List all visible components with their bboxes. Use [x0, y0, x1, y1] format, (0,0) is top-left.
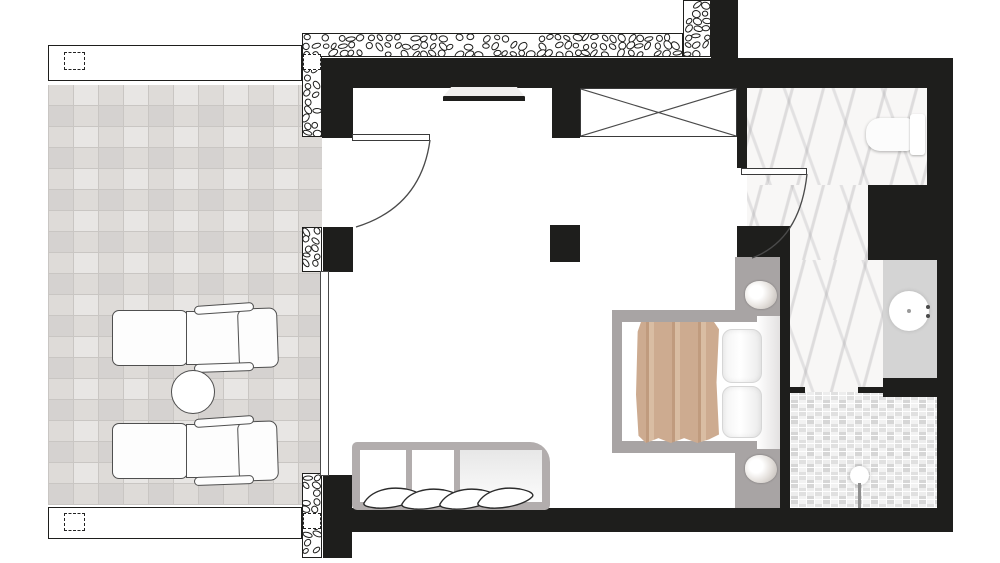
lounger-seat — [112, 310, 188, 366]
bathroom-door-block — [737, 226, 790, 257]
terrace-railing-top — [48, 45, 302, 81]
entry-door-leaf — [352, 134, 430, 141]
round-side-table — [171, 370, 215, 414]
bed-frame-bottom — [612, 440, 736, 453]
bench-pillows — [362, 484, 536, 511]
wall-left-mid — [323, 227, 353, 272]
wall-step-top-right — [711, 0, 738, 62]
bed-blanket — [636, 322, 719, 443]
faucet-icon — [926, 314, 930, 318]
sink-drain — [907, 309, 911, 313]
stone-wall — [683, 0, 711, 57]
floor-plan — [0, 0, 1000, 563]
railing-post — [64, 513, 85, 531]
wall-wardrobe-stub — [552, 88, 580, 138]
toilet-nook-wall — [868, 185, 929, 260]
toilet-bowl — [866, 118, 912, 151]
bathroom-wall-left — [737, 88, 747, 168]
sun-lounger — [112, 420, 278, 482]
wall-tv — [443, 87, 525, 101]
wall-corner-bottom-left — [323, 475, 352, 558]
terrace-railing-bottom — [48, 507, 302, 539]
shower-stem — [858, 483, 861, 508]
lounger-head — [237, 420, 279, 481]
railing-post — [64, 52, 85, 70]
bathroom-divider-wall — [780, 257, 790, 532]
wardrobe — [580, 88, 737, 137]
lounger-back — [186, 424, 242, 478]
bathroom-door-leaf — [741, 168, 807, 175]
sliding-glass-door — [320, 271, 329, 476]
railing-post — [303, 54, 321, 70]
lounger-back — [186, 311, 242, 365]
wall-right-upper — [927, 58, 953, 260]
lounger-seat — [112, 423, 188, 479]
shower-partition-left — [790, 387, 805, 393]
wall-sconce — [745, 281, 777, 309]
room-column — [550, 225, 580, 262]
wall-sconce — [745, 455, 777, 483]
wall-bottom — [323, 508, 953, 532]
bed-pillow — [722, 329, 762, 383]
wall-right-lower — [937, 260, 953, 532]
shower-mosaic-floor — [790, 392, 937, 508]
sun-lounger — [112, 307, 278, 369]
lounger-head — [237, 307, 279, 368]
stone-wall — [302, 33, 683, 57]
wardrobe-cross-icon — [581, 89, 736, 136]
stone-wall — [302, 227, 322, 272]
sink-stub-wall — [883, 378, 937, 397]
railing-post — [303, 513, 321, 529]
faucet-icon — [926, 305, 930, 309]
toilet-tank — [910, 114, 925, 155]
bed-pillow — [722, 386, 762, 438]
wall-top — [322, 58, 953, 88]
bathroom-marble-floor — [790, 260, 883, 393]
wall-left-top — [322, 88, 353, 138]
shower-partition-right — [858, 387, 883, 393]
